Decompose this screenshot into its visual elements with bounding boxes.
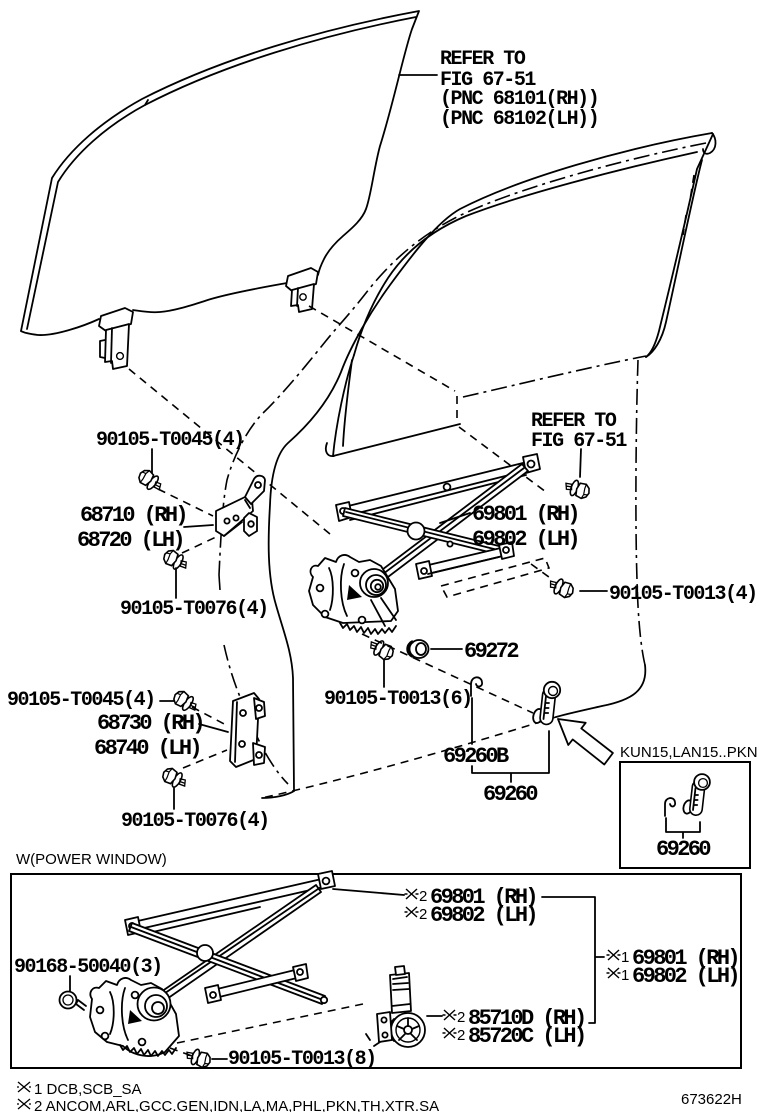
svg-text:69260: 69260	[483, 782, 537, 807]
svg-text:69260: 69260	[656, 837, 710, 862]
svg-text:2: 2	[457, 1009, 465, 1026]
svg-text:90105-T0013(4): 90105-T0013(4)	[609, 583, 757, 606]
svg-text:2: 2	[419, 888, 427, 905]
svg-text:1: 1	[621, 949, 629, 966]
svg-text:90168-50040(3): 90168-50040(3)	[14, 956, 162, 979]
svg-text:68740 (LH): 68740 (LH)	[94, 736, 200, 761]
svg-text:REFER TO: REFER TO	[440, 48, 526, 71]
svg-text:68710 (RH): 68710 (RH)	[80, 503, 186, 528]
svg-text:90105-T0045(4): 90105-T0045(4)	[96, 429, 244, 452]
svg-text:90105-T0045(4): 90105-T0045(4)	[7, 689, 155, 712]
svg-text:2: 2	[419, 906, 427, 923]
svg-text:2 ANCOM,ARL,GCC.GEN,IDN,LA,MA,: 2 ANCOM,ARL,GCC.GEN,IDN,LA,MA,PHL,PKN,TH…	[34, 1098, 439, 1112]
svg-text:KUN15,LAN15..PKN: KUN15,LAN15..PKN	[620, 744, 758, 761]
svg-text:69802 (LH): 69802 (LH)	[472, 527, 578, 552]
svg-text:69802 (LH): 69802 (LH)	[430, 903, 536, 928]
svg-text:68720 (LH): 68720 (LH)	[77, 528, 183, 553]
svg-text:69801 (RH): 69801 (RH)	[472, 502, 578, 527]
svg-text:90105-T0013(6): 90105-T0013(6)	[324, 688, 472, 711]
svg-text:1 DCB,SCB_SA: 1 DCB,SCB_SA	[34, 1081, 142, 1098]
svg-text:W(POWER WINDOW): W(POWER WINDOW)	[16, 851, 167, 868]
svg-text:90105-T0076(4): 90105-T0076(4)	[120, 598, 268, 621]
svg-text:69802 (LH): 69802 (LH)	[632, 964, 738, 989]
svg-text:2: 2	[457, 1027, 465, 1044]
svg-text:673622H: 673622H	[681, 1091, 742, 1108]
svg-text:68730 (RH): 68730 (RH)	[97, 711, 203, 736]
svg-text:90105-T0013(8): 90105-T0013(8)	[228, 1048, 376, 1071]
svg-text:69260B: 69260B	[443, 744, 509, 769]
svg-text:69272: 69272	[464, 639, 518, 664]
svg-text:1: 1	[621, 967, 629, 984]
svg-text:(PNC 68102(LH)): (PNC 68102(LH))	[440, 108, 598, 131]
svg-text:85720C (LH): 85720C (LH)	[468, 1024, 585, 1049]
svg-text:FIG 67-51: FIG 67-51	[531, 430, 627, 453]
svg-text:90105-T0076(4): 90105-T0076(4)	[121, 810, 269, 833]
